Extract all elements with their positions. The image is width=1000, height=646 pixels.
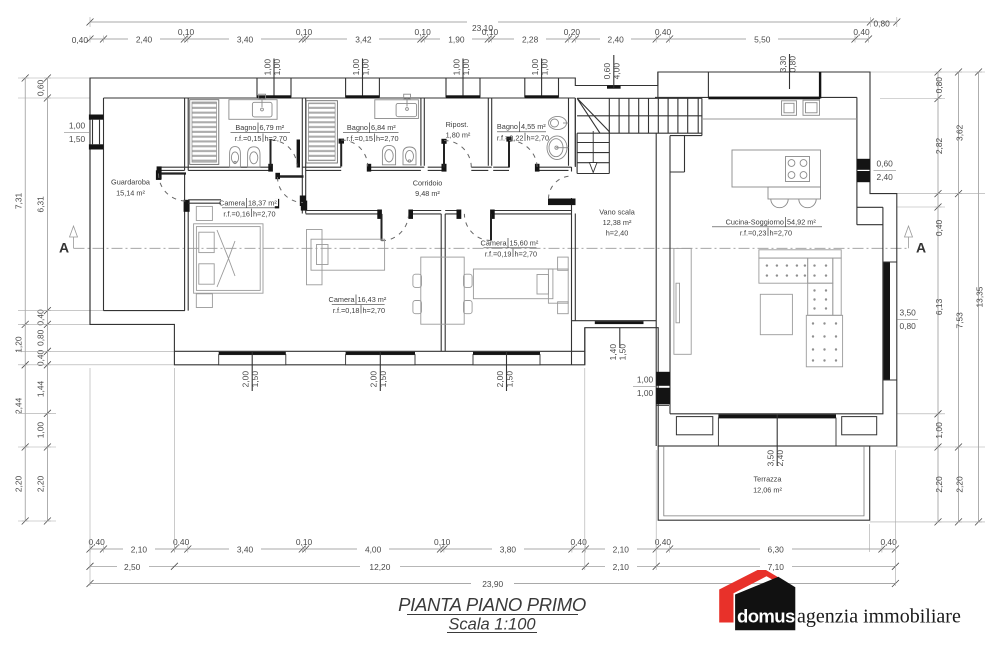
svg-text:0,10: 0,10 — [178, 27, 195, 37]
svg-text:0,40: 0,40 — [36, 350, 46, 367]
svg-text:r.f.=0,16: r.f.=0,16 — [223, 209, 250, 218]
svg-text:1,00: 1,00 — [69, 121, 86, 131]
svg-text:12,20: 12,20 — [369, 562, 390, 572]
svg-text:1,50: 1,50 — [618, 344, 628, 361]
svg-text:1,50: 1,50 — [69, 134, 86, 144]
svg-text:4,00: 4,00 — [612, 63, 622, 80]
svg-text:2,10: 2,10 — [613, 545, 630, 555]
svg-text:1,00: 1,00 — [934, 422, 944, 439]
svg-text:18,37 m²: 18,37 m² — [248, 199, 277, 208]
svg-text:3,30: 3,30 — [778, 56, 788, 73]
svg-text:1,50: 1,50 — [504, 371, 514, 388]
svg-text:1,80 m²: 1,80 m² — [446, 131, 471, 140]
svg-text:A: A — [59, 240, 69, 256]
svg-text:Camera: Camera — [219, 199, 246, 208]
svg-text:2,20: 2,20 — [955, 476, 965, 493]
svg-text:3,62: 3,62 — [955, 124, 965, 141]
svg-text:Guardaroba: Guardaroba — [111, 178, 151, 187]
svg-text:0,80: 0,80 — [934, 77, 944, 94]
svg-text:0,80: 0,80 — [36, 329, 46, 346]
svg-text:r.f.=0,19: r.f.=0,19 — [485, 249, 512, 258]
svg-text:2,20: 2,20 — [934, 476, 944, 493]
svg-text:0,40: 0,40 — [655, 537, 672, 547]
svg-text:0,40: 0,40 — [934, 220, 944, 237]
svg-text:3,40: 3,40 — [237, 545, 254, 555]
svg-text:h=2,70: h=2,70 — [770, 228, 793, 237]
svg-text:Corridoio: Corridoio — [413, 179, 443, 188]
svg-text:0,10: 0,10 — [296, 27, 313, 37]
svg-text:2,40: 2,40 — [877, 172, 894, 182]
svg-text:12,38 m²: 12,38 m² — [603, 218, 632, 227]
svg-text:domus: domus — [737, 606, 795, 627]
svg-text:Camera: Camera — [329, 295, 356, 304]
svg-text:h=2,70: h=2,70 — [265, 134, 288, 143]
svg-text:0,10: 0,10 — [414, 27, 431, 37]
svg-text:1,50: 1,50 — [378, 371, 388, 388]
svg-text:0,80: 0,80 — [900, 321, 917, 331]
svg-text:1,20: 1,20 — [14, 336, 24, 353]
svg-text:h=2,70: h=2,70 — [515, 249, 538, 258]
svg-text:h=2,70: h=2,70 — [363, 306, 386, 315]
svg-text:1,00: 1,00 — [539, 59, 549, 76]
svg-text:r.f.=0,18: r.f.=0,18 — [333, 306, 360, 315]
svg-text:1,40: 1,40 — [608, 344, 618, 361]
svg-text:h=2,70: h=2,70 — [253, 209, 276, 218]
svg-text:PIANTA PIANO PRIMO: PIANTA PIANO PRIMO — [398, 594, 586, 615]
svg-text:r.f.=0,22: r.f.=0,22 — [497, 133, 524, 142]
svg-text:h=2,70: h=2,70 — [376, 134, 399, 143]
svg-text:0,60: 0,60 — [877, 159, 894, 169]
svg-text:agenzia immobiliare: agenzia immobiliare — [797, 606, 961, 628]
svg-text:2,00: 2,00 — [495, 371, 505, 388]
svg-text:7,31: 7,31 — [14, 193, 24, 210]
svg-text:0,20: 0,20 — [564, 27, 581, 37]
svg-text:5,50: 5,50 — [754, 35, 771, 45]
svg-text:2,00: 2,00 — [241, 371, 251, 388]
svg-text:Vano scala: Vano scala — [599, 208, 636, 217]
svg-text:h=2,40: h=2,40 — [606, 229, 629, 238]
svg-text:Terrazza: Terrazza — [754, 475, 783, 484]
svg-text:3,42: 3,42 — [355, 35, 372, 45]
svg-text:2,44: 2,44 — [14, 397, 24, 414]
svg-text:1,00: 1,00 — [262, 59, 272, 76]
svg-text:r.f.=0,15: r.f.=0,15 — [235, 134, 262, 143]
svg-text:6,31: 6,31 — [36, 196, 46, 213]
svg-text:0,80: 0,80 — [874, 19, 891, 29]
svg-text:1,00: 1,00 — [451, 59, 461, 76]
svg-text:0,10: 0,10 — [434, 537, 451, 547]
svg-text:4,55 m²: 4,55 m² — [521, 122, 546, 131]
svg-text:1,50: 1,50 — [250, 371, 260, 388]
svg-text:r.f.=0,15: r.f.=0,15 — [346, 134, 373, 143]
svg-text:2,20: 2,20 — [36, 476, 46, 493]
svg-text:0,10: 0,10 — [482, 27, 499, 37]
svg-text:2,40: 2,40 — [775, 450, 785, 467]
svg-text:h=2,70: h=2,70 — [527, 133, 550, 142]
svg-text:1,00: 1,00 — [351, 59, 361, 76]
svg-text:6,79 m²: 6,79 m² — [260, 123, 285, 132]
svg-text:0,60: 0,60 — [602, 63, 612, 80]
svg-text:A: A — [916, 240, 926, 256]
svg-text:7,53: 7,53 — [955, 312, 965, 329]
svg-text:1,00: 1,00 — [36, 422, 46, 439]
svg-text:3,50: 3,50 — [766, 450, 776, 467]
svg-text:Camera: Camera — [481, 239, 508, 248]
svg-text:4,00: 4,00 — [365, 545, 382, 555]
svg-text:1,00: 1,00 — [637, 375, 654, 385]
svg-text:54,92 m²: 54,92 m² — [787, 218, 816, 227]
svg-text:2,40: 2,40 — [136, 35, 153, 45]
svg-text:0,40: 0,40 — [880, 537, 897, 547]
svg-text:13,35: 13,35 — [975, 286, 985, 307]
svg-text:6,84 m²: 6,84 m² — [371, 123, 396, 132]
svg-text:0,40: 0,40 — [89, 537, 106, 547]
svg-text:0,60: 0,60 — [36, 80, 46, 97]
svg-text:1,00: 1,00 — [637, 388, 654, 398]
svg-text:15,60 m²: 15,60 m² — [510, 239, 539, 248]
svg-text:2,50: 2,50 — [124, 562, 141, 572]
svg-text:23,90: 23,90 — [482, 579, 503, 589]
svg-text:0,80: 0,80 — [787, 56, 797, 73]
svg-text:2,10: 2,10 — [613, 562, 630, 572]
svg-text:12,06 m²: 12,06 m² — [753, 486, 782, 495]
svg-text:0,40: 0,40 — [72, 35, 89, 45]
svg-text:2,82: 2,82 — [934, 138, 944, 155]
svg-text:1,00: 1,00 — [272, 59, 282, 76]
svg-text:1,90: 1,90 — [448, 35, 465, 45]
svg-text:0,40: 0,40 — [173, 537, 190, 547]
svg-text:2,28: 2,28 — [522, 35, 539, 45]
svg-text:6,30: 6,30 — [768, 545, 785, 555]
svg-text:16,43 m²: 16,43 m² — [358, 295, 387, 304]
svg-text:3,40: 3,40 — [237, 35, 254, 45]
svg-text:r.f.=0,23: r.f.=0,23 — [740, 228, 767, 237]
svg-text:0,40: 0,40 — [655, 27, 672, 37]
svg-text:6,13: 6,13 — [934, 298, 944, 315]
svg-text:2,40: 2,40 — [608, 35, 625, 45]
svg-text:3,50: 3,50 — [900, 308, 917, 318]
svg-text:Bagno: Bagno — [347, 123, 368, 132]
svg-text:0,10: 0,10 — [296, 537, 313, 547]
svg-text:15,14 m²: 15,14 m² — [116, 189, 145, 198]
svg-text:Cucina-Soggiorno: Cucina-Soggiorno — [726, 218, 784, 227]
svg-text:7,10: 7,10 — [768, 562, 785, 572]
svg-text:Ripost.: Ripost. — [446, 120, 469, 129]
svg-text:0,40: 0,40 — [36, 309, 46, 326]
svg-text:3,80: 3,80 — [500, 545, 517, 555]
svg-text:1,44: 1,44 — [36, 381, 46, 398]
svg-text:2,10: 2,10 — [131, 545, 148, 555]
svg-text:0,40: 0,40 — [853, 27, 870, 37]
svg-text:Scala 1:100: Scala 1:100 — [448, 616, 536, 634]
svg-text:1,00: 1,00 — [461, 59, 471, 76]
svg-text:9,48 m²: 9,48 m² — [415, 189, 440, 198]
svg-text:1,00: 1,00 — [360, 59, 370, 76]
svg-text:2,20: 2,20 — [14, 476, 24, 493]
svg-text:1,00: 1,00 — [530, 59, 540, 76]
svg-text:Bagno: Bagno — [235, 123, 256, 132]
svg-text:2,00: 2,00 — [369, 371, 379, 388]
svg-text:Bagno: Bagno — [497, 122, 518, 131]
